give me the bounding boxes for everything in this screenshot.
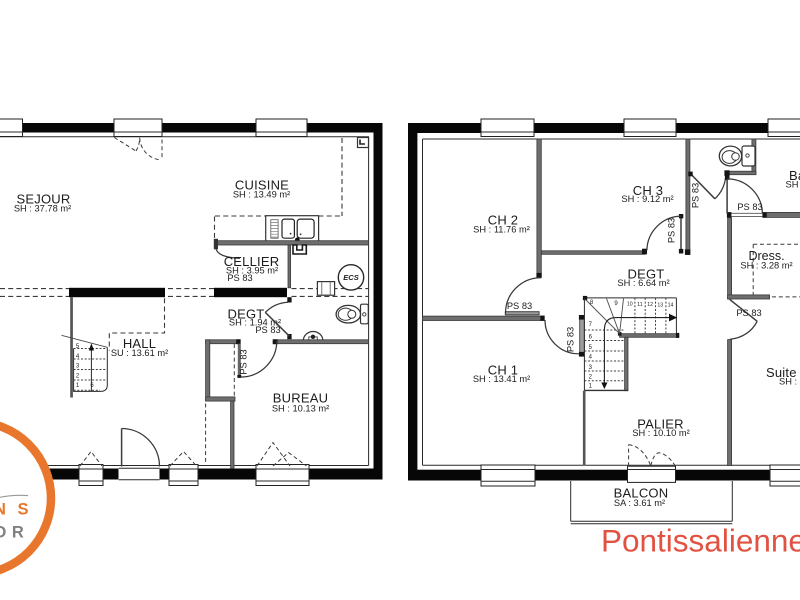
svg-text:PS 83: PS 83 (566, 327, 576, 352)
svg-text:SH : 13.41 m²: SH : 13.41 m² (473, 374, 530, 384)
svg-text:SH : 3.28 m²: SH : 3.28 m² (740, 261, 792, 271)
svg-text:PS 83: PS 83 (255, 325, 280, 335)
svg-text:Pontissalienne: Pontissalienne (601, 523, 800, 559)
svg-text:SH :: SH : (786, 179, 800, 189)
svg-text:SH : 37.78 m²: SH : 37.78 m² (14, 204, 71, 214)
svg-text:SH : 10.13 m²: SH : 10.13 m² (272, 403, 329, 413)
svg-text:10: 10 (627, 302, 633, 308)
svg-text:SH : 6.64 m²: SH : 6.64 m² (617, 278, 669, 288)
svg-text:12: 12 (647, 302, 653, 308)
svg-text:PS 83: PS 83 (227, 273, 252, 283)
svg-text:14: 14 (668, 303, 674, 309)
svg-text:PS 83: PS 83 (737, 202, 762, 212)
svg-text:PS 83: PS 83 (691, 183, 701, 208)
svg-text:SH : 10.10 m²: SH : 10.10 m² (632, 428, 689, 438)
svg-text:SU : 13.61 m²: SU : 13.61 m² (111, 348, 168, 358)
svg-text:SH : 13.49 m²: SH : 13.49 m² (233, 189, 290, 199)
svg-text:SH : 14: SH : 14 (779, 377, 800, 387)
svg-text:SA : 3.61 m²: SA : 3.61 m² (614, 498, 665, 508)
svg-text:PS 83: PS 83 (736, 308, 761, 318)
svg-text:ECS: ECS (343, 273, 358, 282)
svg-text:PS 83: PS 83 (507, 301, 532, 311)
svg-text:PS 83: PS 83 (239, 349, 249, 374)
svg-text:13: 13 (657, 302, 663, 308)
svg-text:PS 83: PS 83 (666, 218, 676, 243)
svg-text:N S: N S (0, 500, 32, 518)
svg-text:11: 11 (637, 302, 642, 308)
svg-text:SH : 11.76 m²: SH : 11.76 m² (473, 225, 530, 235)
svg-text:O R: O R (0, 524, 24, 542)
svg-text:SH : 9.12 m²: SH : 9.12 m² (621, 194, 673, 204)
